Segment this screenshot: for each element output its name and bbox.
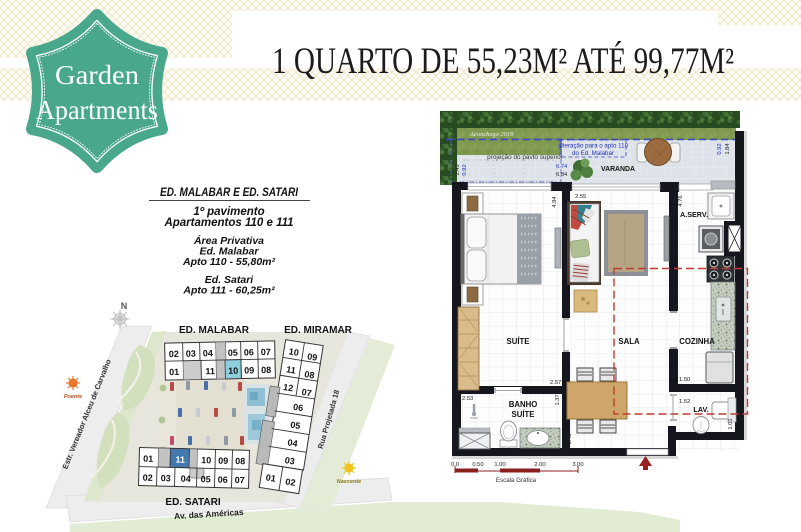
svg-text:1.43: 1.43 <box>455 164 461 175</box>
svg-text:SUÍTE: SUÍTE <box>507 337 530 346</box>
svg-text:alteração para o apto 110: alteração para o apto 110 <box>558 143 629 150</box>
svg-text:SUÍTE: SUÍTE <box>512 410 535 419</box>
svg-text:10: 10 <box>201 455 211 465</box>
svg-text:01: 01 <box>169 367 179 377</box>
svg-text:05: 05 <box>201 474 211 484</box>
svg-text:07: 07 <box>235 475 245 485</box>
svg-text:Poente: Poente <box>64 394 82 400</box>
svg-text:ED. MALABAR E ED. SATARI: ED. MALABAR E ED. SATARI <box>160 185 299 199</box>
svg-text:1.52: 1.52 <box>679 399 690 405</box>
svg-text:4.76: 4.76 <box>678 195 684 206</box>
svg-text:07: 07 <box>301 387 312 398</box>
svg-text:06: 06 <box>292 402 303 413</box>
svg-text:09: 09 <box>218 456 228 466</box>
svg-text:07: 07 <box>261 347 271 357</box>
svg-text:Garden: Garden <box>55 60 140 90</box>
svg-text:LAV.: LAV. <box>693 405 708 414</box>
svg-text:0.50: 0.50 <box>472 462 483 468</box>
svg-text:08: 08 <box>235 456 245 466</box>
svg-text:Apartamentos 110 e 111: Apartamentos 110 e 111 <box>163 217 293 229</box>
svg-text:6.84: 6.84 <box>556 172 568 178</box>
svg-text:0.92: 0.92 <box>717 143 723 154</box>
svg-text:Escala Gráfica: Escala Gráfica <box>496 477 537 484</box>
svg-text:01: 01 <box>143 454 153 464</box>
svg-text:10: 10 <box>228 366 238 376</box>
svg-text:06: 06 <box>218 475 228 485</box>
svg-text:02: 02 <box>285 476 296 487</box>
svg-text:do Ed. Malabar: do Ed. Malabar <box>572 150 614 157</box>
svg-text:03: 03 <box>186 349 196 359</box>
svg-text:1.84: 1.84 <box>725 143 731 155</box>
svg-text:VARANDA: VARANDA <box>601 164 635 173</box>
svg-text:04: 04 <box>181 474 191 484</box>
svg-text:ED. MIRAMAR: ED. MIRAMAR <box>284 325 353 336</box>
svg-text:05: 05 <box>290 420 301 431</box>
svg-text:0.46: 0.46 <box>567 433 573 444</box>
svg-text:1.37: 1.37 <box>555 394 561 405</box>
svg-text:12: 12 <box>282 382 293 393</box>
svg-text:09: 09 <box>244 365 254 375</box>
svg-text:02: 02 <box>169 349 179 359</box>
svg-text:ED. MALABAR: ED. MALABAR <box>179 325 250 336</box>
svg-text:02: 02 <box>143 473 153 483</box>
svg-text:1.00: 1.00 <box>494 462 505 468</box>
svg-text:Nascente: Nascente <box>337 479 361 485</box>
svg-text:1 QUARTO DE 55,23M² ATÉ 99,77M: 1 QUARTO DE 55,23M² ATÉ 99,77M² <box>272 40 734 82</box>
svg-text:11: 11 <box>175 454 185 464</box>
svg-text:Apartments: Apartments <box>36 95 158 125</box>
svg-text:11: 11 <box>205 366 215 376</box>
svg-text:ED. SATARI: ED. SATARI <box>165 497 220 508</box>
svg-text:01: 01 <box>265 472 276 483</box>
svg-text:Aconchego 2019: Aconchego 2019 <box>469 131 514 138</box>
svg-text:2.00: 2.00 <box>534 462 545 468</box>
svg-text:N: N <box>121 301 128 311</box>
svg-text:A.SERV.: A.SERV. <box>680 210 708 219</box>
svg-text:Apto 110 - 55,80m²: Apto 110 - 55,80m² <box>182 256 276 268</box>
svg-text:COZINHA: COZINHA <box>679 337 715 346</box>
svg-text:05: 05 <box>228 348 238 358</box>
svg-text:6.74: 6.74 <box>556 164 568 170</box>
svg-text:09: 09 <box>307 351 318 362</box>
svg-text:03: 03 <box>284 455 295 466</box>
svg-text:projeção do pavto superior: projeção do pavto superior <box>487 154 564 161</box>
svg-text:1.01: 1.01 <box>728 418 734 429</box>
svg-text:03: 03 <box>161 473 171 483</box>
svg-text:SALA: SALA <box>618 337 640 346</box>
svg-text:0.92: 0.92 <box>462 164 468 175</box>
svg-text:04: 04 <box>287 437 298 448</box>
svg-text:11: 11 <box>286 364 297 375</box>
svg-text:BANHO: BANHO <box>509 400 538 409</box>
svg-text:10: 10 <box>288 346 299 357</box>
svg-text:08: 08 <box>304 369 315 380</box>
svg-text:2.55: 2.55 <box>575 194 586 200</box>
svg-text:1.50: 1.50 <box>679 377 690 383</box>
svg-text:4.94: 4.94 <box>552 196 558 208</box>
svg-text:Apto 111 - 60,25m²: Apto 111 - 60,25m² <box>182 285 275 297</box>
svg-text:04: 04 <box>203 348 213 358</box>
svg-text:2.57: 2.57 <box>550 380 561 386</box>
svg-text:06: 06 <box>244 347 254 357</box>
svg-text:2.53: 2.53 <box>462 396 473 402</box>
svg-text:08: 08 <box>261 365 271 375</box>
